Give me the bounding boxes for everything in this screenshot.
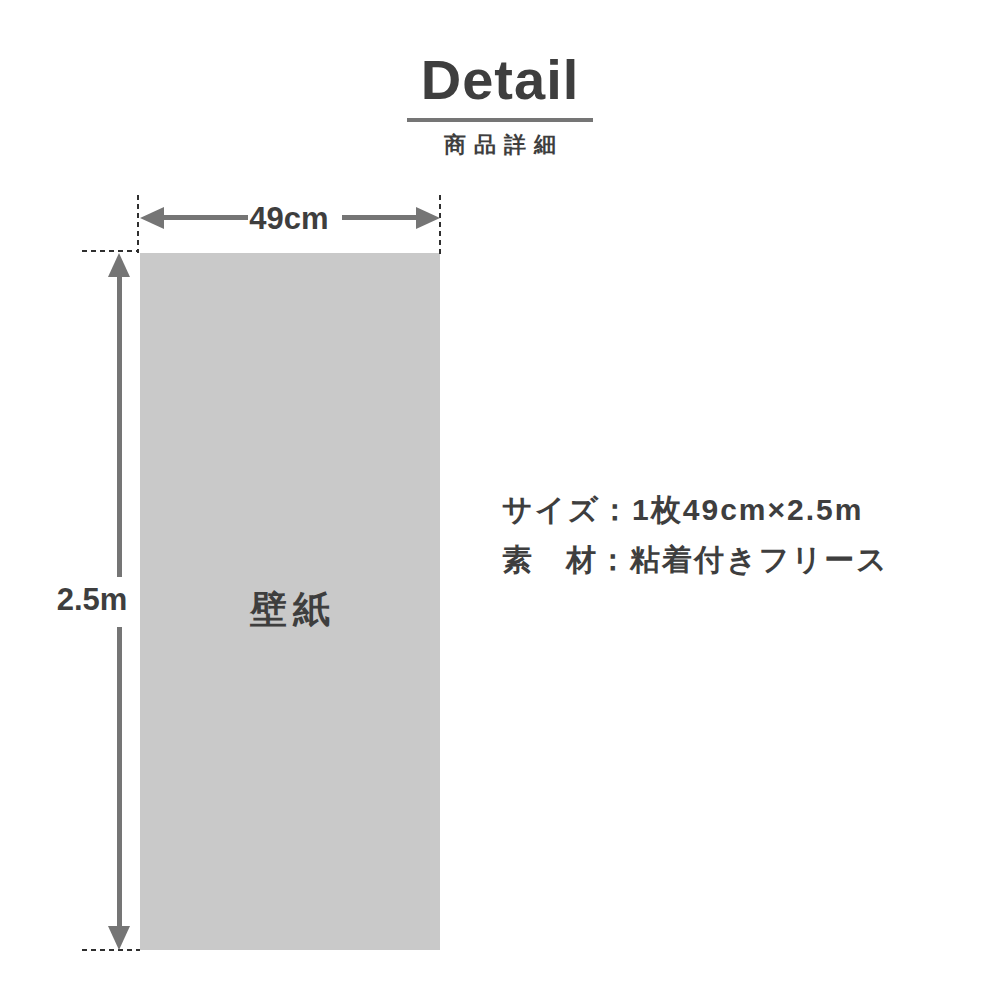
height-arrow-shaft-lower — [117, 627, 122, 926]
height-arrow-shaft-upper — [117, 275, 122, 577]
height-arrowhead-down-icon — [108, 926, 130, 950]
page-subtitle: 商品詳細 — [0, 132, 1000, 158]
height-dimension-label: 2.5m — [42, 584, 142, 615]
height-arrowhead-up-icon — [108, 253, 130, 277]
spec-list: サイズ：1枚49cm×2.5m 素 材：粘着付きフリース — [502, 485, 889, 585]
page-title: Detail — [0, 52, 1000, 108]
width-dimension-label: 49cm — [239, 203, 339, 234]
width-arrowhead-right-icon — [416, 207, 440, 229]
width-arrow-shaft-left — [160, 215, 248, 220]
product-detail-page: Detail 商品詳細 壁紙 49cm 2.5m サイズ：1枚49cm×2.5m… — [0, 0, 1000, 1000]
wallpaper-panel-label: 壁紙 — [244, 569, 336, 635]
wallpaper-panel: 壁紙 — [140, 253, 440, 950]
title-underline — [407, 118, 593, 122]
extension-line-top-left — [137, 195, 139, 253]
extension-line-corner-top — [82, 250, 138, 252]
spec-size: サイズ：1枚49cm×2.5m — [502, 485, 889, 535]
spec-material: 素 材：粘着付きフリース — [502, 535, 889, 585]
